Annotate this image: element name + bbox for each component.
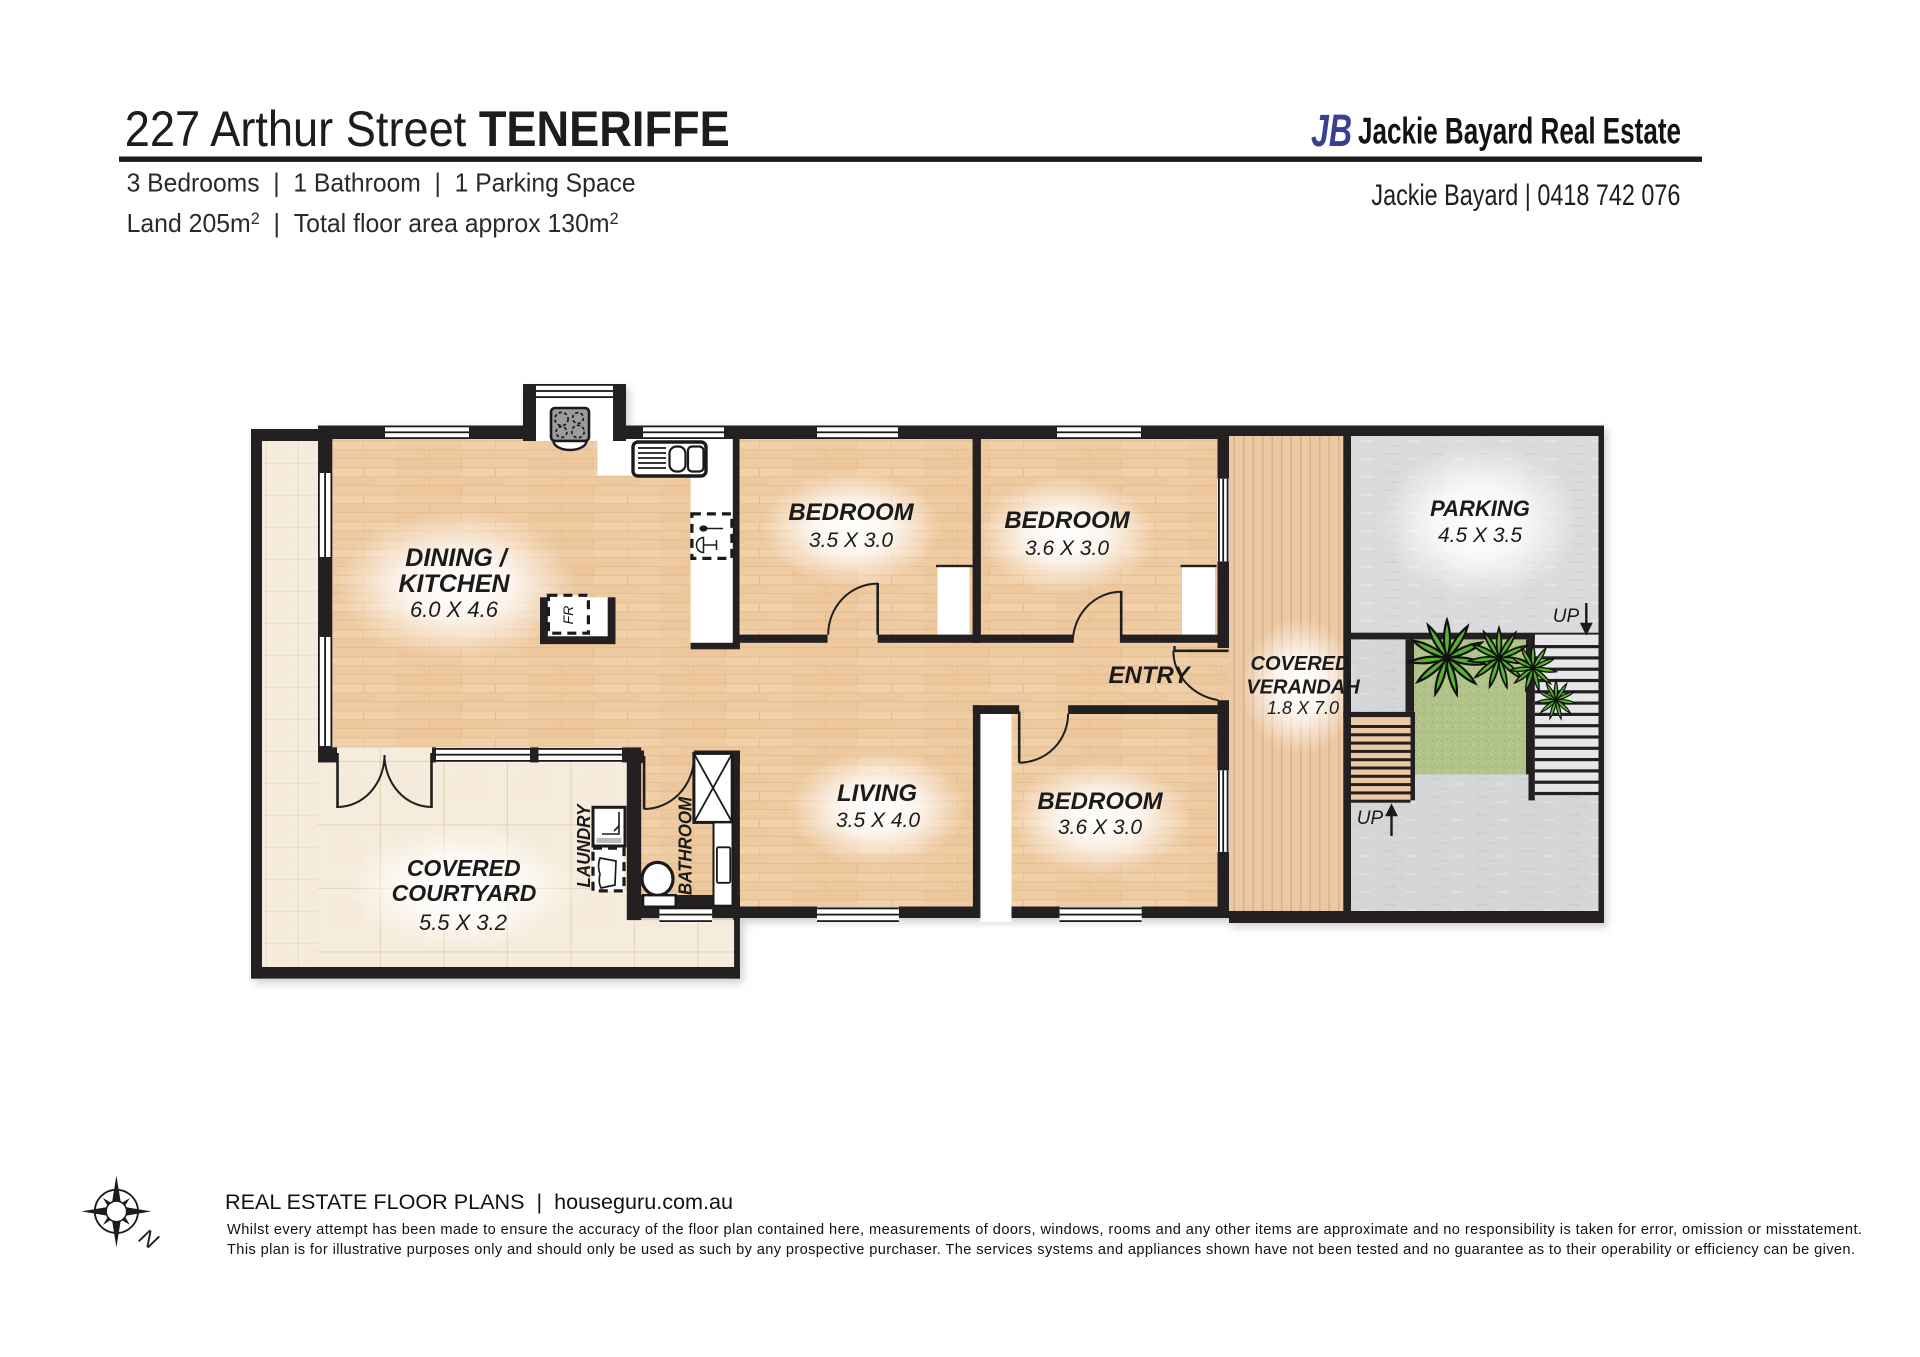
svg-text:BEDROOM: BEDROOM bbox=[788, 499, 914, 526]
svg-text:3.6 X 3.0: 3.6 X 3.0 bbox=[1025, 537, 1109, 560]
svg-text:DINING /: DINING / bbox=[405, 544, 509, 572]
svg-text:KITCHEN: KITCHEN bbox=[398, 570, 510, 598]
svg-text:BEDROOM: BEDROOM bbox=[1004, 507, 1130, 534]
svg-text:LIVING: LIVING bbox=[837, 780, 917, 807]
svg-text:N: N bbox=[135, 1223, 164, 1254]
svg-text:LAUNDRY: LAUNDRY bbox=[573, 803, 594, 888]
svg-text:BEDROOM: BEDROOM bbox=[1037, 788, 1163, 815]
svg-text:5.5 X 3.2: 5.5 X 3.2 bbox=[419, 910, 507, 935]
svg-text:3.6 X 3.0: 3.6 X 3.0 bbox=[1058, 816, 1142, 839]
svg-text:Land 205m2 | Total floor are: Land 205m2 | Total floor area approx 130… bbox=[127, 208, 619, 238]
svg-text:COVERED: COVERED bbox=[407, 855, 521, 881]
svg-text:Whilst every attempt has been: Whilst every attempt has been made to en… bbox=[227, 1222, 1862, 1238]
svg-text:This plan is for illustrative: This plan is for illustrative purposes o… bbox=[227, 1242, 1855, 1258]
svg-text:227 Arthur Street TENERIFFE: 227 Arthur Street TENERIFFE bbox=[125, 101, 730, 157]
svg-text:4.5 X 3.5: 4.5 X 3.5 bbox=[1438, 524, 1522, 547]
svg-text:COURTYARD: COURTYARD bbox=[392, 880, 537, 906]
svg-text:JB: JB bbox=[1311, 105, 1352, 156]
svg-text:REAL ESTATE FLOOR PLANS | ho: REAL ESTATE FLOOR PLANS | houseguru.com.… bbox=[225, 1190, 733, 1214]
svg-text:1.8 X 7.0: 1.8 X 7.0 bbox=[1267, 698, 1339, 718]
svg-text:3.5 X 4.0: 3.5 X 4.0 bbox=[836, 809, 920, 832]
svg-text:VERANDAH: VERANDAH bbox=[1246, 677, 1360, 699]
svg-text:3 Bedrooms | 1 Bathroom |: 3 Bedrooms | 1 Bathroom | 1 Parking Spac… bbox=[127, 168, 636, 198]
svg-text:FR: FR bbox=[560, 606, 576, 625]
svg-text:ENTRY: ENTRY bbox=[1109, 662, 1192, 689]
svg-text:UP: UP bbox=[1357, 808, 1384, 829]
svg-text:Jackie Bayard Real Estate: Jackie Bayard Real Estate bbox=[1358, 110, 1681, 152]
svg-text:COVERED: COVERED bbox=[1251, 653, 1350, 675]
svg-text:BATHROOM: BATHROOM bbox=[675, 796, 696, 895]
svg-text:6.0 X 4.6: 6.0 X 4.6 bbox=[410, 597, 499, 622]
svg-text:Jackie Bayard | 0418 742 076: Jackie Bayard | 0418 742 076 bbox=[1371, 179, 1680, 212]
svg-text:3.5 X 3.0: 3.5 X 3.0 bbox=[809, 529, 893, 552]
svg-text:UP: UP bbox=[1553, 606, 1580, 627]
svg-text:PARKING: PARKING bbox=[1430, 496, 1530, 521]
